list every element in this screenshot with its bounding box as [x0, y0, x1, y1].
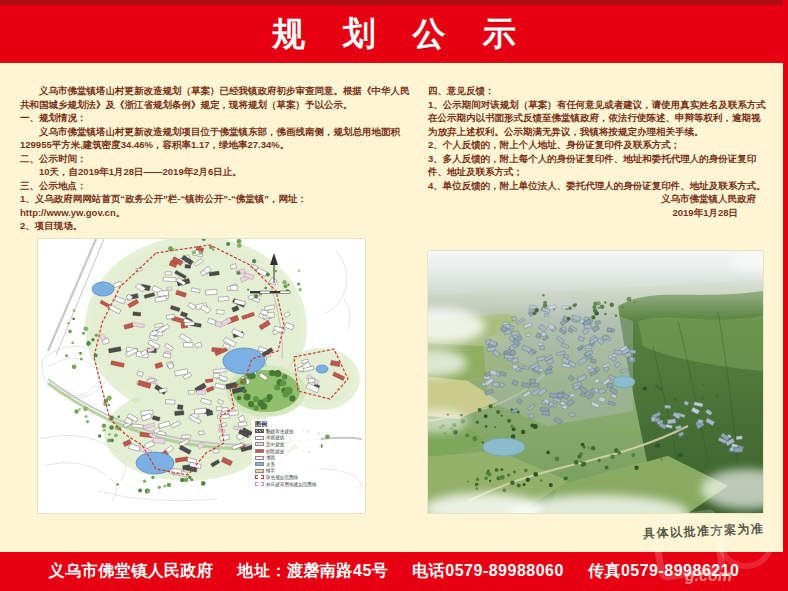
section3-item1: 1、义乌政府网网站首页“政务公开”栏-“镇街公开”-“佛堂镇”，网址：http:…: [20, 192, 412, 219]
legend-row: 拆除建筑: [255, 448, 319, 455]
legend-row: 铺装: [255, 468, 319, 475]
legend-row: 水系: [255, 461, 319, 468]
right-border-stripe: [783, 0, 788, 591]
signature-date: 2019年1月28日: [428, 206, 768, 220]
legend-row: 历史建筑: [255, 441, 319, 448]
section1-body: 义乌市佛堂镇塔山村更新改造规划项目位于佛堂镇东部，佛画线南侧，规划总用地面积12…: [20, 125, 412, 152]
section4-item2: 2、个人反馈的，附上个人地址、身份证复印件及联系方式；: [428, 138, 768, 152]
legend-label: 改造规划范围线: [266, 475, 298, 480]
legend-label: 翻建改造建筑: [266, 429, 294, 434]
aerial-rendering: [428, 251, 763, 513]
legend-swatch: [255, 475, 264, 479]
legend-swatch: [255, 462, 264, 466]
legend-label: 水系: [266, 462, 275, 467]
legend-label: 村庄建设用地规划范围线: [266, 482, 317, 487]
section2-title: 二、公示时间：: [20, 152, 412, 166]
legend-swatch: [255, 456, 264, 460]
section3-title: 三、公示地点：: [20, 179, 412, 193]
legend-label: 道路: [266, 455, 275, 460]
legend-label: 历史建筑: [266, 442, 284, 447]
section1-title: 一、规划情况：: [20, 111, 412, 125]
section4-item3: 3、多人反馈的，附上每个人的身份证复印件、地址和委托代理人的身份证复印件、地址及…: [428, 152, 768, 179]
legend-label: 拆除建筑: [266, 449, 284, 454]
legend-swatch: [255, 469, 264, 473]
title-band: 规 划 公 示: [0, 5, 788, 63]
section3-item2: 2、项目现场。: [20, 219, 412, 233]
footer-fax: 传真0579-89986210: [588, 561, 740, 582]
legend-swatch: [255, 436, 264, 440]
legend-swatch: [255, 429, 264, 433]
master-plan-map: 图例 翻建改造建筑保留建筑历史建筑拆除建筑道路水系铺装改造规划范围线村庄建设用地…: [38, 239, 365, 513]
legend-swatch: [255, 482, 264, 486]
footer-bar: 义乌市佛堂镇人民政府 地址：渡磬南路45号 电话0579-89988060 传真…: [0, 552, 788, 591]
legend-label: 铺装: [266, 468, 275, 473]
scale-bar-icon: [250, 291, 290, 293]
section4-item1: 1、公示期间对该规划（草案）有任何意见或者建议，请使用真实姓名及联系方式在公示期…: [428, 98, 768, 139]
notice-body: 义乌市佛堂镇塔山村更新改造规划（草案）已经我镇政府初步审查同意。根据《中华人民共…: [0, 63, 788, 239]
notice-right-column: 四、意见反馈： 1、公示期间对该规划（草案）有任何意见或者建议，请使用真实姓名及…: [428, 84, 768, 239]
footer-address: 地址：渡磬南路45号: [237, 561, 388, 582]
poster-title: 规 划 公 示: [258, 12, 530, 57]
legend-title: 图例: [255, 421, 319, 428]
legend-row: 村庄建设用地规划范围线: [255, 481, 319, 488]
approval-note: 具体以批准方案为准: [642, 520, 764, 542]
legend-rows: 翻建改造建筑保留建筑历史建筑拆除建筑道路水系铺装改造规划范围线村庄建设用地规划范…: [255, 428, 319, 487]
legend-row: 翻建改造建筑: [255, 428, 319, 435]
legend-swatch: [255, 449, 264, 453]
section4-title: 四、意见反馈：: [428, 84, 768, 98]
legend-row: 道路: [255, 454, 319, 461]
aerial-rendering-drawing: [428, 251, 763, 513]
map-legend: 图例 翻建改造建筑保留建筑历史建筑拆除建筑道路水系铺装改造规划范围线村庄建设用地…: [252, 419, 321, 489]
intro-paragraph: 义乌市佛堂镇塔山村更新改造规划（草案）已经我镇政府初步审查同意。根据《中华人民共…: [20, 84, 412, 111]
footer-phone: 电话0579-89988060: [412, 561, 564, 582]
signature-org: 义乌市佛堂镇人民政府: [428, 192, 768, 206]
planning-notice-poster: 规 划 公 示 义乌市佛堂镇塔山村更新改造规划（草案）已经我镇政府初步审查同意。…: [0, 0, 788, 591]
legend-label: 保留建筑: [266, 435, 284, 440]
figures-row: 图例 翻建改造建筑保留建筑历史建筑拆除建筑道路水系铺装改造规划范围线村庄建设用地…: [0, 239, 788, 515]
section2-body: 10天，自2019年1月28日——2019年2月6日止。: [20, 165, 412, 179]
legend-row: 改造规划范围线: [255, 474, 319, 481]
legend-swatch: [255, 442, 264, 446]
notice-left-column: 义乌市佛堂镇塔山村更新改造规划（草案）已经我镇政府初步审查同意。根据《中华人民共…: [20, 84, 412, 239]
footer-org: 义乌市佛堂镇人民政府: [48, 561, 213, 582]
legend-row: 保留建筑: [255, 435, 319, 442]
section4-item4: 4、单位反馈的，附上单位法人、委托代理人的身份证复印件、地址及联系方式。: [428, 179, 768, 193]
